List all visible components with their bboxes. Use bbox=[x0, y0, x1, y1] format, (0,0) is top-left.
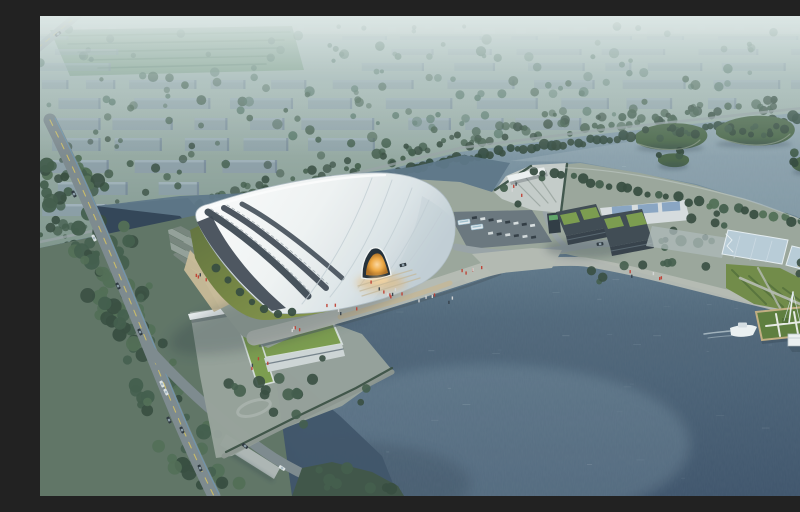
cool-tint bbox=[40, 16, 800, 496]
aerial-render: Aerial dusk rendering of a lakefront sta… bbox=[40, 16, 800, 496]
render-canvas: Aerial dusk rendering of a lakefront sta… bbox=[40, 16, 800, 496]
atmosphere-haze bbox=[40, 16, 800, 496]
